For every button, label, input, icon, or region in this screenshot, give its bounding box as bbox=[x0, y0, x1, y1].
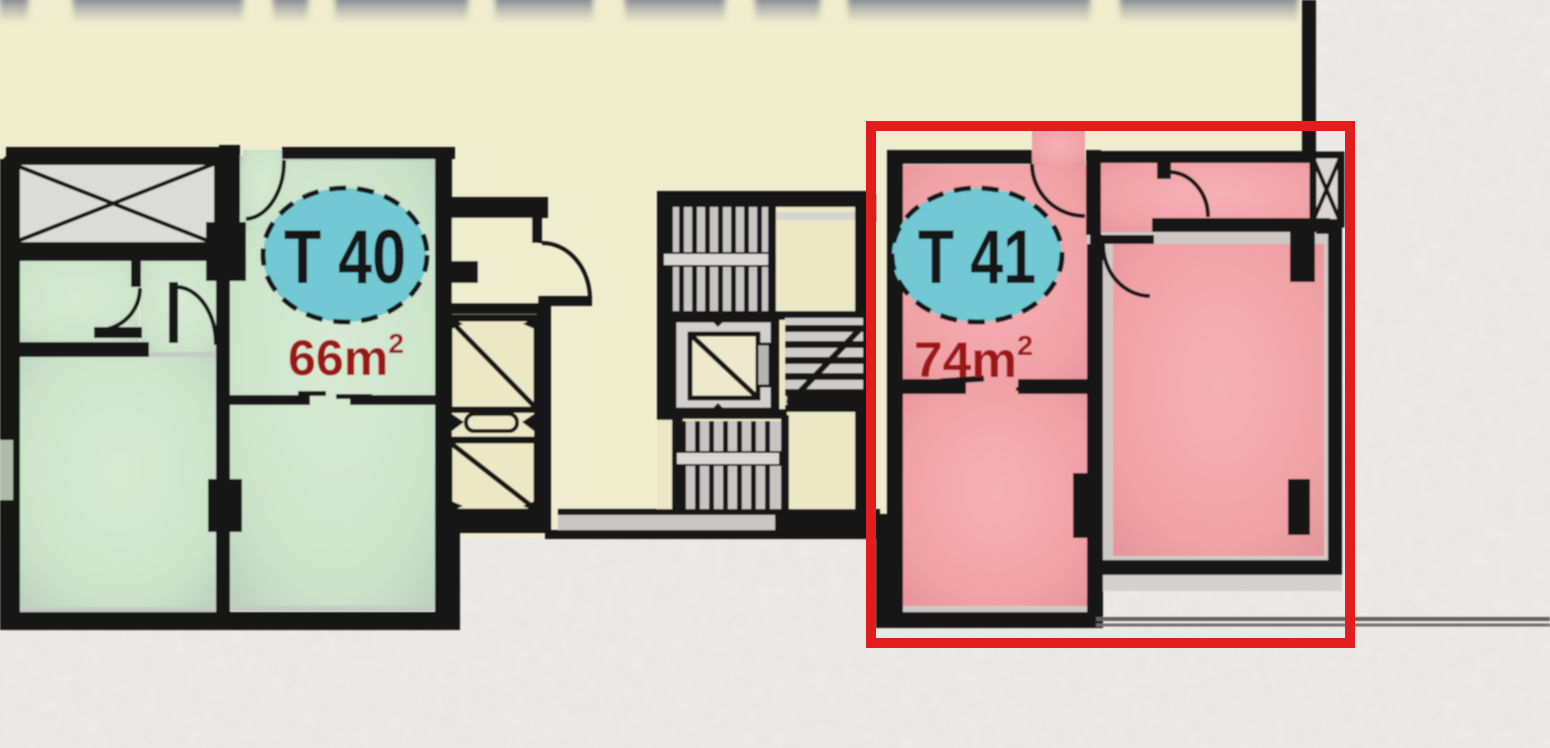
svg-text:T 41: T 41 bbox=[918, 215, 1036, 300]
svg-text:T 40: T 40 bbox=[284, 215, 406, 300]
svg-text:66m2: 66m2 bbox=[288, 328, 404, 386]
svg-text:74m2: 74m2 bbox=[914, 330, 1033, 388]
